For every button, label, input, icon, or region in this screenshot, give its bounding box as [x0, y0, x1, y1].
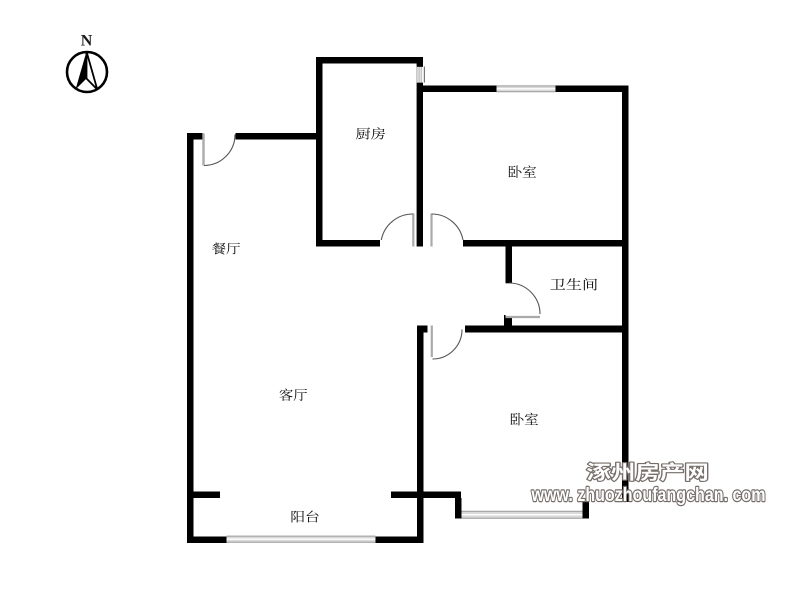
svg-text:www. zhuozhoufangchan. com: www. zhuozhoufangchan. com — [531, 484, 766, 506]
svg-text:N: N — [81, 33, 93, 50]
